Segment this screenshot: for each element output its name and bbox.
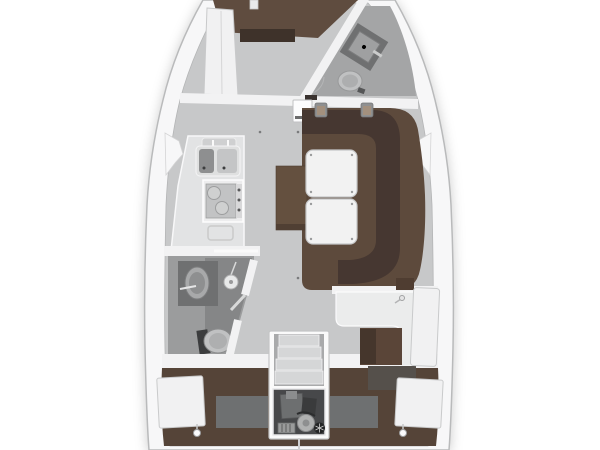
nav-desk-shelf	[396, 278, 414, 290]
stove-knob-2	[238, 199, 241, 202]
v-berth-footwell	[240, 29, 295, 42]
stove-burner-1	[208, 187, 221, 200]
salon-table-aft	[306, 199, 357, 244]
headrest-left	[315, 103, 327, 117]
cabin-door-handle	[295, 116, 303, 119]
center-bench-edge	[276, 224, 307, 230]
shower-head-center	[229, 280, 233, 284]
engine-filter-cap	[303, 420, 310, 427]
aft-toilet-bowl	[209, 333, 227, 349]
anchor-locker-hatch	[250, 0, 258, 9]
step-4	[275, 371, 323, 384]
step-2	[278, 347, 321, 358]
center-bench	[276, 166, 307, 230]
sink-drain-right	[223, 167, 226, 170]
floorplan-svg	[0, 0, 600, 450]
stove-burner-2	[216, 202, 229, 215]
stove-knob-3	[238, 209, 241, 212]
headrest-cushion	[363, 106, 371, 115]
engine-head	[286, 391, 297, 399]
stove-knob-1	[238, 189, 241, 192]
engine-pulley	[314, 423, 325, 434]
engine-cooler	[278, 423, 295, 433]
sink-drain-left	[203, 167, 206, 170]
aft-locker-left	[157, 376, 206, 428]
sink-basin-small	[199, 149, 214, 173]
head-door-sill	[305, 95, 317, 100]
companionway-steps	[275, 335, 323, 384]
step-3	[276, 359, 322, 370]
headrest-cushion	[317, 106, 325, 115]
sink-basin-large	[217, 149, 237, 173]
aft-locker-right	[395, 378, 443, 428]
boat-floorplan	[0, 0, 600, 450]
aft-berth-panel-left	[216, 396, 268, 428]
starboard-locker	[410, 287, 439, 366]
aft-head-sink-bowl	[189, 272, 205, 294]
step-1	[279, 335, 319, 346]
nav-seat-back	[360, 329, 376, 364]
headrest-right	[361, 103, 373, 117]
salon-table-forward	[306, 150, 357, 197]
aft-berth-panel-right	[330, 396, 378, 428]
forward-toilet-bowl	[342, 75, 358, 88]
nav-lamp	[400, 296, 405, 301]
